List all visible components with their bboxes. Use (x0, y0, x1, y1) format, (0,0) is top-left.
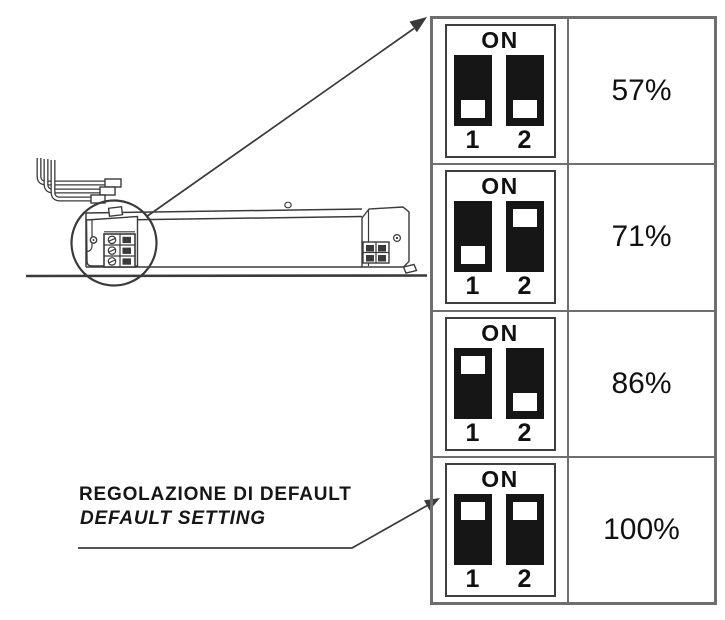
wire-end-tab (109, 207, 123, 217)
switch-number-1: 1 (454, 274, 492, 299)
dip-switch-2 (506, 55, 544, 126)
dip-compartment-detail (87, 207, 138, 267)
switch-number-2: 2 (506, 421, 544, 446)
switch-number-1: 1 (454, 567, 492, 592)
percent-cell: 100% (568, 457, 715, 603)
dip-switch-1 (454, 494, 492, 565)
on-label: ON (447, 27, 554, 53)
dip-switch-1 (454, 348, 492, 419)
switch-slider (461, 100, 485, 118)
callout-arrow (146, 17, 427, 217)
switch-slider (513, 393, 537, 411)
on-label: ON (447, 320, 554, 346)
output-percent: 71% (611, 220, 671, 254)
output-percent: 100% (603, 513, 680, 547)
dip-switch-2 (506, 494, 544, 565)
dip-switch-2 (506, 348, 544, 419)
switch-slider (461, 356, 485, 374)
percent-cell: 86% (568, 311, 715, 457)
switch-number-1: 1 (454, 421, 492, 446)
switch-slider (461, 246, 485, 264)
dip-cell: ON 1 2 (432, 164, 568, 310)
switch-slider (461, 502, 485, 520)
output-percent: 86% (611, 367, 671, 401)
dip-switch-2 (506, 201, 544, 272)
dip-cell: ON 1 2 (432, 311, 568, 457)
on-label: ON (447, 466, 554, 492)
switch-slider (513, 100, 537, 118)
figure-canvas: REGOLAZIONE DI DEFAULT DEFAULT SETTING O… (0, 0, 725, 620)
dip-switch-box: ON 1 2 (445, 317, 556, 451)
dip-switch-box: ON 1 2 (445, 24, 556, 158)
switch-number-1: 1 (454, 128, 492, 153)
dip-settings-table: ON 1 2 57% ON (430, 16, 717, 605)
wire-ferrule (100, 187, 115, 195)
percent-cell: 57% (568, 18, 715, 164)
dip-cell: ON 1 2 (432, 457, 568, 603)
percent-cell: 71% (568, 164, 715, 310)
dip-switch-1 (454, 55, 492, 126)
dip-cell: ON 1 2 (432, 18, 568, 164)
dip-switch-box: ON 1 2 (445, 170, 556, 304)
default-setting-label-en: DEFAULT SETTING (80, 508, 266, 530)
switch-slider (513, 209, 537, 227)
wire-ferrule (105, 179, 121, 187)
input-wires (39, 158, 121, 203)
switch-number-2: 2 (506, 274, 544, 299)
terminal-block (104, 232, 135, 267)
output-percent: 57% (611, 74, 671, 108)
on-label: ON (447, 173, 554, 199)
dip-switch-box-default: ON 1 2 (445, 463, 556, 597)
end-cap-terminal (362, 207, 417, 273)
dip-switch-1 (454, 201, 492, 272)
switch-number-2: 2 (506, 128, 544, 153)
default-setting-label-it: REGOLAZIONE DI DEFAULT (79, 484, 352, 506)
switch-number-2: 2 (506, 567, 544, 592)
switch-slider (513, 502, 537, 520)
mounting-hole (285, 202, 291, 208)
